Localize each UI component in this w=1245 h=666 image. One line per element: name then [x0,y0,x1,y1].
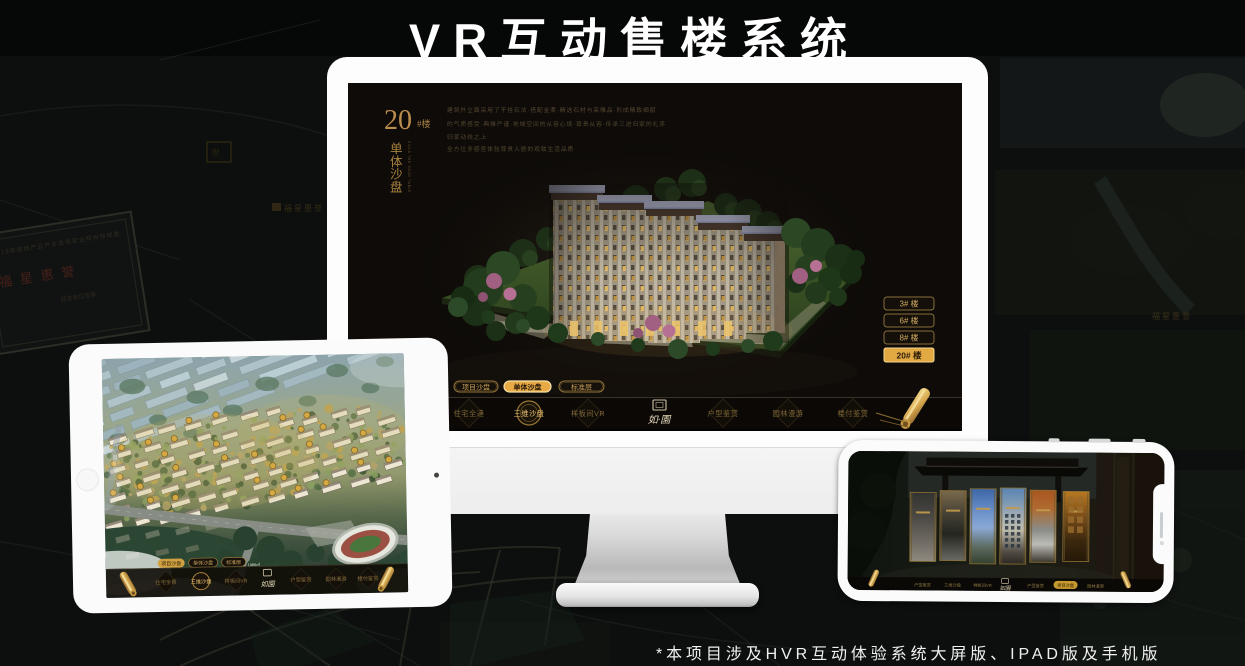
svg-text:全方位多感官体验尊贵人居的观致生活品质: 全方位多感官体验尊贵人居的观致生活品质 [447,145,574,153]
svg-text:福星惠誉: 福星惠誉 [1152,311,1192,321]
svg-text:的气质感受·典雅严谨·地域空间的从容心境·尊贵从容·传承三进: 的气质感受·典雅严谨·地域空间的从容心境·尊贵从容·传承三进归家的礼序 [447,120,666,128]
svg-text:20: 20 [384,105,412,136]
svg-text:项目沙盘: 项目沙盘 [462,383,490,392]
svg-text:楼付鉴赏: 楼付鉴赏 [838,409,869,418]
svg-text:VILLA THE SAND TABLE: VILLA THE SAND TABLE [407,141,411,193]
svg-text:三维沙盘: 三维沙盘 [514,409,545,418]
svg-text:6# 楼: 6# 楼 [899,316,918,326]
svg-text:项目沙盘: 项目沙盘 [161,560,181,567]
svg-text:标准层: 标准层 [226,559,241,566]
svg-text:单体沙盘: 单体沙盘 [514,383,542,392]
svg-text:盘: 盘 [390,179,403,194]
svg-text:户型鉴赏: 户型鉴赏 [708,409,739,418]
svg-text:归家动线之上·: 归家动线之上· [447,133,490,141]
svg-text:样板间VR: 样板间VR [571,409,605,418]
svg-text:世: 世 [211,147,220,158]
svg-text:如園: 如園 [1000,585,1013,592]
svg-text:如園: 如園 [261,580,276,588]
svg-text:3# 楼: 3# 楼 [899,299,918,309]
svg-text:标准层: 标准层 [571,383,592,392]
svg-text:8# 楼: 8# 楼 [899,333,918,343]
svg-text:#楼: #楼 [417,118,431,129]
svg-text:建筑外立面采用了干挂石法·搭配金柔·精选石材与高雅品·形成精: 建筑外立面采用了干挂石法·搭配金柔·精选石材与高雅品·形成精致细腻 [447,106,656,114]
svg-text:住宅全递: 住宅全递 [454,409,485,418]
svg-text:园林漫游: 园林漫游 [773,409,804,418]
svg-text:福星惠誉: 福星惠誉 [284,203,324,213]
svg-text:园区三路: 园区三路 [112,455,118,475]
svg-text:单体沙盘: 单体沙盘 [193,559,213,566]
svg-text:20# 楼: 20# 楼 [896,351,922,361]
svg-text:如·園: 如·園 [648,414,673,426]
